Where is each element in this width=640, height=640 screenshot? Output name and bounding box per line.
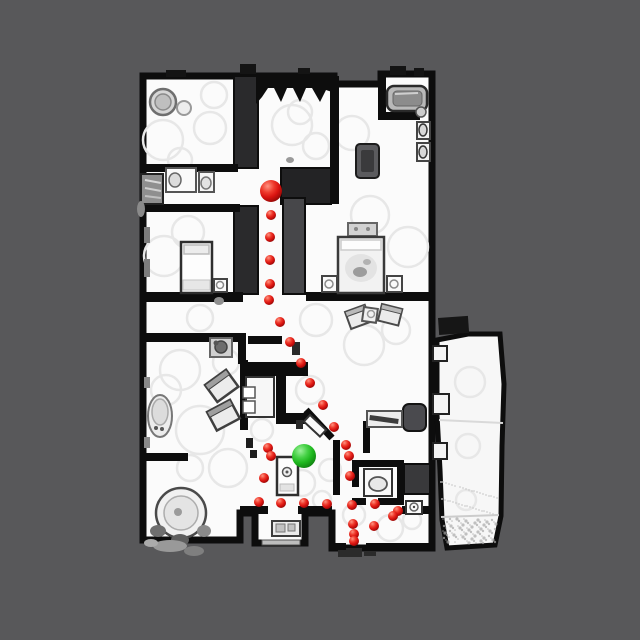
texture-dot [464, 519, 467, 522]
texture-dot [441, 498, 443, 500]
waypoint-dot-8 [296, 358, 306, 368]
texture-dot [464, 532, 467, 535]
texture-dot [455, 536, 457, 538]
furniture [154, 426, 158, 430]
furniture [419, 146, 427, 158]
furniture [201, 177, 211, 189]
texture-dot [442, 481, 444, 483]
texture-dot [472, 507, 474, 509]
texture-dot [496, 497, 498, 499]
texture-dot [469, 524, 471, 526]
waypoint-dot-3 [265, 255, 275, 265]
furniture [137, 201, 145, 217]
furniture [144, 437, 150, 448]
texture-dot [467, 528, 470, 531]
texture-dot [473, 490, 475, 492]
wall-segment [382, 112, 420, 120]
waypoint-dot-29 [349, 536, 359, 546]
texture-dot [460, 534, 462, 536]
furniture [286, 157, 294, 163]
texture-dot [486, 511, 488, 513]
texture-dot [466, 540, 468, 542]
texture-dot [454, 541, 456, 543]
waypoint-dot-13 [266, 451, 276, 461]
texture-dot [491, 532, 493, 534]
texture-dot [476, 518, 479, 521]
wall-block [234, 206, 258, 294]
furniture [353, 267, 367, 277]
waypoint-dot-7 [285, 337, 295, 347]
furniture [362, 307, 378, 323]
texture-dot [452, 527, 454, 529]
texture-dot [452, 501, 454, 503]
furniture [160, 427, 164, 431]
waypoint-dot-14 [341, 440, 351, 450]
wall-segment [238, 336, 246, 364]
texture-dot [491, 538, 494, 541]
texture-dot [451, 484, 453, 486]
texture-dot [476, 491, 478, 493]
texture-dot [464, 538, 466, 540]
terrace-step [433, 346, 447, 361]
furniture [250, 450, 257, 458]
wall-block [283, 198, 305, 294]
furniture [419, 124, 427, 136]
texture-dot [488, 535, 490, 537]
texture-dot [461, 529, 463, 531]
furniture [184, 546, 204, 556]
texture-dot [467, 541, 470, 544]
texture-dot [482, 542, 484, 544]
terrace-step [433, 394, 449, 414]
waypoint-dot-27 [369, 521, 379, 531]
waypoint-dot-21 [322, 499, 332, 509]
wall-segment [276, 413, 308, 424]
wall-block [403, 404, 426, 431]
texture-dot [457, 525, 459, 527]
texture-dot [493, 496, 495, 498]
texture-dot [475, 542, 477, 544]
texture-dot [490, 537, 492, 539]
texture-dot [482, 523, 485, 526]
goal-sphere [292, 444, 316, 468]
texture-dot [482, 530, 484, 532]
furniture [174, 508, 182, 516]
furniture [144, 377, 150, 388]
texture-dot [494, 522, 497, 525]
texture-dot [488, 523, 490, 525]
texture-dot [473, 521, 476, 524]
waypoint-dot-6 [275, 317, 285, 327]
texture-dot [470, 537, 473, 540]
texture-dot [478, 509, 480, 511]
texture-dot [473, 540, 475, 542]
texture-dot [458, 520, 460, 522]
texture-dot [463, 531, 465, 533]
wall-segment [352, 460, 402, 467]
texture-dot [466, 505, 468, 507]
texture-dot [469, 506, 471, 508]
furniture [144, 539, 158, 547]
texture-dot [448, 483, 450, 485]
texture-dot [458, 526, 461, 529]
texture-dot [479, 539, 482, 542]
texture-dot [472, 533, 474, 535]
scene-viewport[interactable] [0, 0, 640, 640]
wall-segment [366, 543, 432, 550]
furniture [183, 280, 210, 290]
furniture [361, 150, 374, 172]
texture-dot [452, 533, 455, 536]
texture-dot [454, 485, 456, 487]
texture-dot [448, 523, 450, 525]
furniture [150, 525, 166, 537]
texture-dot [443, 537, 445, 539]
texture-dot [461, 535, 464, 538]
screenshot-root: { "scene": { "background_color": "#58585… [0, 0, 640, 640]
texture-dot [445, 527, 447, 529]
waypoint-dot-1 [266, 210, 276, 220]
wall-segment [143, 453, 188, 461]
texture-dot [482, 493, 484, 495]
texture-dot [442, 518, 444, 520]
waypoint-dot-5 [264, 295, 274, 305]
furniture [177, 101, 191, 115]
waypoint-dot-19 [276, 498, 286, 508]
waypoint-dot-18 [254, 497, 264, 507]
texture-dot [488, 495, 490, 497]
furniture [296, 420, 303, 429]
texture-dot [455, 517, 458, 520]
texture-dot [449, 500, 451, 502]
furniture [369, 477, 387, 491]
texture-dot [462, 487, 464, 489]
wall-block [234, 76, 258, 168]
texture-dot [479, 527, 482, 530]
texture-dot [446, 540, 449, 543]
texture-dot [473, 534, 476, 537]
texture-dot [463, 518, 465, 520]
texture-dot [488, 529, 491, 532]
waypoint-dot-10 [318, 400, 328, 410]
texture-dot [489, 512, 491, 514]
texture-dot [445, 482, 447, 484]
furniture [416, 107, 426, 117]
waypoint-dot-22 [347, 500, 357, 510]
texture-dot [459, 486, 461, 488]
terrace-step [433, 443, 447, 459]
wall-segment [378, 498, 404, 505]
furniture [348, 223, 377, 236]
texture-dot [446, 534, 448, 536]
texture-dot [468, 489, 470, 491]
texture-dot [467, 522, 469, 524]
furniture [276, 524, 285, 532]
floorplan-map [0, 0, 640, 640]
texture-dot [478, 526, 480, 528]
texture-dot [481, 510, 483, 512]
texture-dot [444, 499, 446, 501]
wall-block [390, 66, 406, 75]
texture-dot [483, 510, 485, 512]
waypoint-dot-25 [388, 511, 398, 521]
wall-segment [332, 543, 346, 550]
texture-dot [491, 519, 493, 521]
texture-dot [479, 533, 481, 535]
wall-segment [333, 440, 340, 495]
furniture [366, 227, 370, 231]
texture-dot [466, 527, 468, 529]
texture-dot [454, 529, 456, 531]
furniture [214, 341, 219, 346]
texture-dot [494, 528, 496, 530]
texture-dot [457, 538, 459, 540]
texture-dot [476, 530, 479, 533]
texture-dot [485, 494, 487, 496]
texture-dot [493, 521, 495, 523]
wall-segment [330, 76, 339, 204]
texture-dot [461, 504, 463, 506]
texture-dot [479, 492, 481, 494]
waypoint-dot-4 [265, 279, 275, 289]
wall-block [414, 68, 424, 76]
waypoint-dot-9 [305, 378, 315, 388]
furniture [243, 401, 255, 413]
furniture [152, 399, 168, 425]
texture-dot [465, 488, 467, 490]
furniture [262, 540, 300, 545]
texture-dot [470, 531, 472, 533]
wall-segment [240, 506, 268, 514]
texture-dot [455, 502, 457, 504]
texture-dot [447, 500, 449, 502]
furniture [395, 93, 418, 94]
texture-dot [451, 532, 453, 534]
waypoint-dot-20 [299, 498, 309, 508]
furniture [155, 94, 171, 110]
texture-dot [487, 528, 489, 530]
texture-dot [440, 481, 442, 483]
texture-dot [471, 490, 473, 492]
texture-dot [484, 519, 486, 521]
waypoint-dot-16 [259, 473, 269, 483]
furniture [413, 506, 415, 508]
texture-dot [485, 526, 487, 528]
furniture [354, 227, 358, 231]
texture-dot [464, 505, 466, 507]
furniture [153, 540, 187, 552]
texture-dot [448, 536, 450, 538]
texture-dot [470, 525, 473, 528]
wall-segment [248, 336, 282, 344]
furniture [184, 245, 209, 254]
waypoint-dot-17 [345, 471, 355, 481]
texture-dot [445, 539, 447, 541]
texture-dot [461, 523, 464, 526]
waypoint-dot-11 [329, 422, 339, 432]
texture-dot [485, 520, 488, 523]
texture-dot [449, 524, 452, 527]
furniture [246, 438, 253, 448]
furniture [197, 525, 211, 537]
texture-dot [451, 520, 453, 522]
texture-dot [449, 518, 451, 520]
furniture [144, 259, 150, 277]
wall-block [166, 70, 186, 77]
waypoint-dot-2 [265, 232, 275, 242]
furniture [363, 259, 371, 265]
texture-dot [485, 539, 487, 541]
texture-dot [494, 541, 496, 543]
wall-block [438, 316, 469, 335]
furniture [286, 471, 289, 474]
texture-dot [458, 503, 460, 505]
wall-block [404, 464, 430, 494]
texture-dot [482, 536, 485, 539]
texture-dot [449, 530, 451, 532]
texture-dot [442, 530, 444, 532]
furniture [288, 524, 295, 531]
wall-block [240, 64, 256, 74]
texture-dot [460, 522, 462, 524]
furniture [280, 484, 294, 491]
furniture [214, 297, 224, 305]
wall-block [364, 551, 376, 556]
waypoint-dot-23 [370, 499, 380, 509]
start-sphere [260, 180, 282, 202]
texture-dot [443, 531, 446, 534]
texture-dot [490, 495, 492, 497]
wall-segment [146, 204, 240, 212]
texture-dot [479, 521, 481, 523]
furniture [144, 227, 150, 243]
texture-dot [481, 535, 483, 537]
texture-dot [443, 525, 445, 527]
waypoint-dot-26 [348, 519, 358, 529]
waypoint-dot-15 [344, 451, 354, 461]
texture-dot [446, 521, 448, 523]
texture-dot [475, 508, 477, 510]
furniture [341, 240, 381, 250]
texture-dot [476, 524, 478, 526]
furniture [169, 173, 181, 187]
furniture [243, 387, 255, 398]
